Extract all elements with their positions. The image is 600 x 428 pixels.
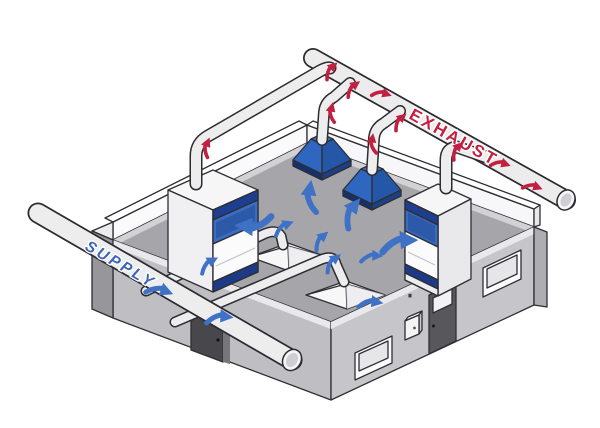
- control-panel-knob: [413, 327, 416, 330]
- side-door-knob: [216, 338, 219, 341]
- diagram-canvas: EXHAUST SUPPLY: [0, 0, 600, 428]
- ventilation-diagram: EXHAUST SUPPLY: [0, 0, 600, 428]
- building-end-right: [534, 227, 547, 307]
- fume-hood-right-side: [438, 199, 471, 296]
- control-panel-display: [409, 294, 412, 298]
- parapet-right-end: [534, 205, 540, 227]
- front-door-knob: [432, 325, 435, 328]
